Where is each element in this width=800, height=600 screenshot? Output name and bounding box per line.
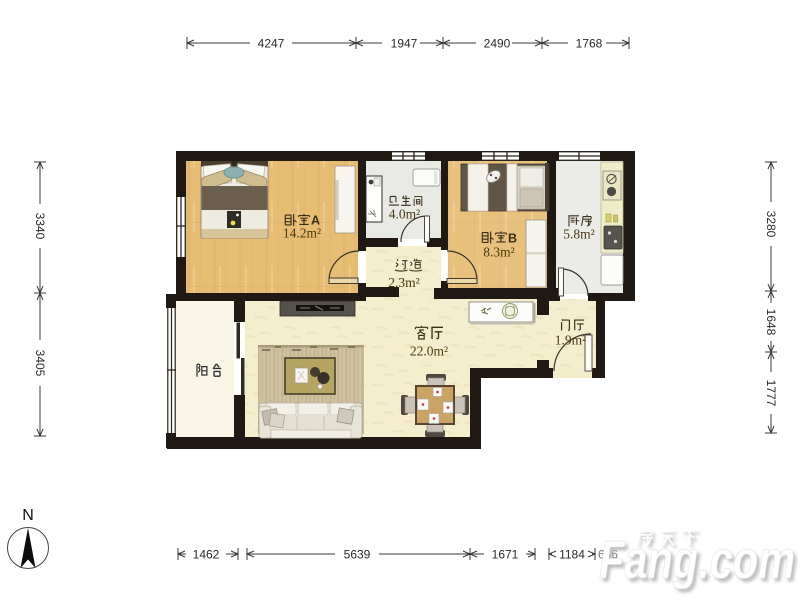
svg-text:8.3m²: 8.3m² [483,245,514,260]
svg-text:1462: 1462 [193,548,220,562]
svg-text:5639: 5639 [344,548,371,562]
svg-text:1671: 1671 [492,548,519,562]
svg-text:4247: 4247 [258,37,285,51]
svg-text:1184: 1184 [559,548,585,562]
svg-text:4.0m²: 4.0m² [389,207,420,222]
svg-text:3405: 3405 [33,350,47,377]
svg-text:2490: 2490 [484,37,511,51]
svg-text:1648: 1648 [764,309,778,336]
svg-text:1768: 1768 [576,37,603,51]
svg-text:14.2m²: 14.2m² [283,226,321,241]
svg-text:Fang.com: Fang.com [599,530,795,590]
svg-text:1.9m²: 1.9m² [555,333,586,348]
svg-text:5.8m²: 5.8m² [563,227,594,242]
svg-text:N: N [22,507,34,524]
svg-text:1777: 1777 [764,380,778,407]
svg-text:22.0m²: 22.0m² [410,344,448,359]
svg-text:B: B [508,232,517,246]
svg-text:1947: 1947 [391,37,418,51]
svg-text:2.3m²: 2.3m² [388,275,419,290]
svg-text:3340: 3340 [33,213,47,240]
svg-text:3280: 3280 [764,211,778,238]
